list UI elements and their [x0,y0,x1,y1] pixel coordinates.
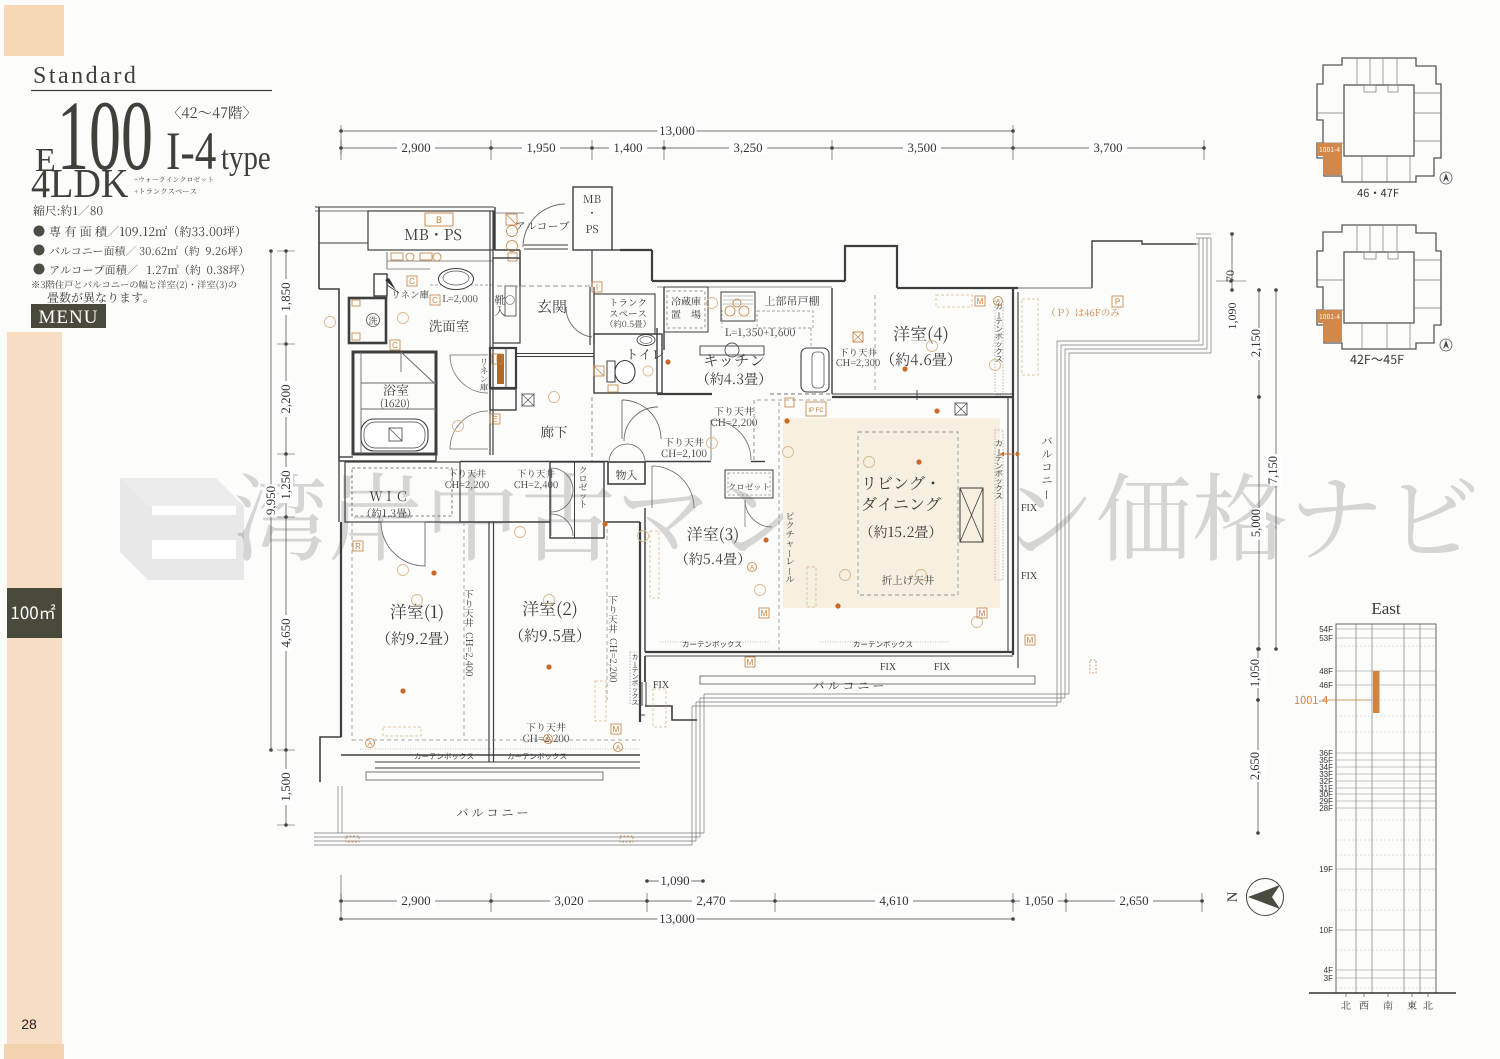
svg-text:C: C [409,277,415,286]
svg-text:1,500: 1,500 [278,772,293,801]
svg-text:7,150: 7,150 [1266,456,1280,484]
svg-text:FIX: FIX [934,662,951,673]
svg-text:M: M [1027,636,1034,645]
svg-text:C: C [392,341,398,350]
svg-text:4,610: 4,610 [879,893,908,908]
svg-text:M: M [977,297,984,306]
svg-text:3F: 3F [1324,974,1333,983]
svg-text:53F: 53F [1319,634,1333,643]
svg-text:2,150: 2,150 [1249,329,1263,357]
svg-text:FIX: FIX [1021,503,1038,514]
svg-text:19F: 19F [1319,865,1333,874]
svg-text:3,020: 3,020 [554,893,583,908]
svg-text:MENU: MENU [39,307,99,328]
svg-text:E: E [492,415,497,424]
svg-text:2,650: 2,650 [1248,752,1262,780]
svg-text:1,950: 1,950 [526,140,555,155]
svg-text:IP FC: IP FC [808,408,824,414]
svg-text:M: M [545,737,550,744]
svg-text:P: P [1115,298,1120,307]
svg-text:1,400: 1,400 [613,140,642,155]
svg-text:A: A [368,741,373,748]
svg-text:M: M [979,609,986,618]
svg-text:28F: 28F [1319,804,1333,813]
svg-text:M: M [761,609,768,618]
svg-text:4LDK: 4LDK [31,161,129,207]
svg-text:2,470: 2,470 [696,893,725,908]
svg-text:1,090: 1,090 [1225,303,1239,330]
svg-text:1,050: 1,050 [1248,659,1262,687]
svg-text:2,900: 2,900 [401,140,430,155]
svg-text:I: I [496,355,498,364]
svg-text:46F: 46F [1319,681,1333,690]
svg-text:13,000: 13,000 [659,123,695,138]
svg-text:2,200: 2,200 [278,384,293,413]
svg-text:A: A [750,565,755,572]
svg-text:FIX: FIX [880,662,897,673]
svg-text:54F: 54F [1319,625,1333,634]
svg-text:type: type [221,139,271,177]
svg-text:R: R [355,542,361,551]
svg-text:1,090: 1,090 [660,873,689,888]
svg-text:5,000: 5,000 [1249,509,1263,537]
svg-text:I-4: I-4 [166,120,216,181]
svg-text:3,500: 3,500 [907,140,936,155]
svg-text:A: A [996,299,1001,306]
svg-text:3,700: 3,700 [1093,140,1122,155]
svg-text:70: 70 [1223,270,1237,282]
svg-text:2,650: 2,650 [1119,893,1148,908]
svg-text:1,850: 1,850 [278,282,293,311]
svg-text:A: A [616,745,621,752]
svg-text:2,900: 2,900 [401,893,430,908]
svg-text:9,950: 9,950 [263,486,278,515]
svg-text:4,650: 4,650 [278,618,293,647]
svg-text:C: C [432,296,438,305]
svg-text:I: I [596,283,598,292]
svg-text:M: M [613,725,620,734]
svg-text:3,250: 3,250 [733,140,762,155]
svg-text:10F: 10F [1319,926,1333,935]
svg-text:48F: 48F [1319,667,1333,676]
svg-text:FIX: FIX [1021,571,1038,582]
svg-text:1,050: 1,050 [1024,893,1053,908]
svg-text:13,000: 13,000 [659,911,695,926]
svg-text:East: East [1371,599,1401,618]
svg-text:N: N [1225,891,1241,902]
svg-text:B: B [436,215,442,225]
svg-text:1,250: 1,250 [278,470,293,499]
svg-text:28: 28 [21,1016,37,1032]
svg-text:M: M [747,658,754,667]
